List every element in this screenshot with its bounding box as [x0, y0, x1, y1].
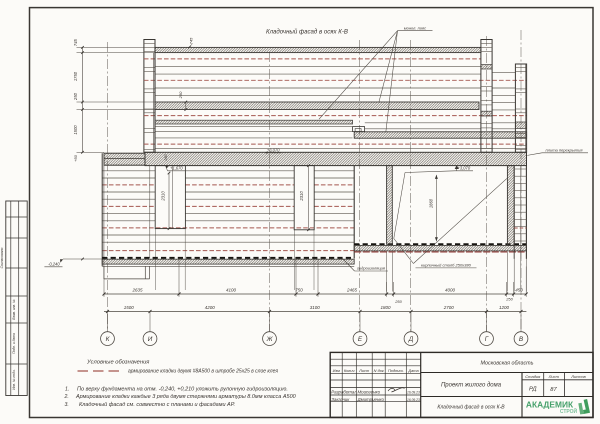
svg-text:1.: 1. [65, 386, 69, 392]
svg-text:Взам. инв. №: Взам. инв. № [12, 299, 16, 320]
svg-text:Д: Д [408, 336, 414, 343]
svg-text:В: В [519, 336, 524, 343]
svg-text:кирпичный столб 250х380: кирпичный столб 250х380 [421, 262, 471, 267]
svg-text:Разработал: Разработал [331, 390, 357, 395]
svg-text:Дата: Дата [407, 368, 419, 373]
svg-text:Колич: Колич [344, 368, 355, 373]
svg-text:Подпись: Подпись [388, 368, 403, 373]
svg-text:Кладочный фасад см. совместно: Кладочный фасад см. совместно с планами … [79, 401, 235, 408]
svg-text:По верху фундамента на отм. -0: По верху фундамента на отм. -0,240, +0,2… [77, 386, 288, 392]
svg-text:1750: 1750 [73, 71, 78, 81]
svg-text:2465: 2465 [346, 288, 358, 293]
svg-text:Дмитриенко: Дмитриенко [357, 397, 385, 402]
svg-text:Г: Г [485, 336, 489, 343]
svg-text:И: И [148, 336, 153, 343]
svg-text:плита перекрытия: плита перекрытия [546, 148, 584, 153]
svg-text:3.: 3. [65, 402, 69, 408]
svg-text:+1,670: +1,670 [170, 166, 183, 171]
svg-text:Е: Е [358, 336, 363, 343]
svg-text:2700: 2700 [443, 305, 455, 310]
svg-text:Ж: Ж [266, 336, 274, 343]
svg-text:1500: 1500 [124, 305, 135, 310]
svg-text:армирование кладки двумя #8А50: армирование кладки двумя #8А500 в штробе… [128, 369, 278, 375]
svg-text:Условные обозначения: Условные обозначения [86, 360, 149, 366]
svg-text:250: 250 [178, 91, 183, 99]
svg-text:16.09.23: 16.09.23 [407, 390, 420, 394]
svg-text:4100: 4100 [226, 288, 237, 293]
svg-text:Подп. и дата: Подп. и дата [12, 333, 16, 354]
svg-text:Кладочный фасад в осях К-В: Кладочный фасад в осях К-В [266, 29, 348, 36]
svg-text:745: 745 [73, 38, 78, 46]
svg-text:Кладочный фасад в осях К-В: Кладочный фасад в осях К-В [437, 404, 505, 411]
svg-text:Лист: Лист [358, 368, 370, 373]
svg-text:-0,240: -0,240 [48, 261, 60, 266]
svg-text:260: 260 [164, 154, 168, 162]
svg-text:Листов: Листов [570, 374, 586, 379]
svg-text:87: 87 [550, 387, 557, 393]
svg-text:N док: N док [374, 368, 384, 373]
svg-text:745: 745 [189, 37, 194, 44]
svg-text:+3,070: +3,070 [267, 147, 280, 152]
svg-text:Изм: Изм [333, 368, 341, 373]
svg-text:3100: 3100 [310, 305, 321, 310]
svg-text:Стадия: Стадия [525, 374, 541, 379]
svg-text:250: 250 [73, 92, 78, 101]
svg-text:РД: РД [529, 387, 537, 393]
svg-text:2635: 2635 [131, 288, 143, 293]
svg-text:+50: +50 [73, 154, 78, 162]
svg-text:4200: 4200 [205, 305, 216, 310]
svg-text:1200: 1200 [499, 305, 510, 310]
svg-text:1800: 1800 [380, 305, 391, 310]
svg-text:250: 250 [505, 297, 513, 302]
svg-text:1500: 1500 [73, 125, 78, 135]
svg-text:монол. пояс: монол. пояс [404, 25, 426, 30]
svg-text:16.09.23: 16.09.23 [407, 398, 420, 402]
svg-text:2310: 2310 [299, 191, 304, 202]
svg-text:гидроизоляция: гидроизоляция [357, 266, 386, 271]
svg-text:250: 250 [394, 299, 402, 304]
svg-text:Моисеенко: Моисеенко [358, 390, 381, 395]
svg-text:Лист: Лист [548, 374, 560, 379]
svg-text:2.: 2. [64, 394, 69, 400]
svg-text:Согласовано: Согласовано [0, 248, 4, 269]
svg-text:4000: 4000 [445, 288, 456, 293]
svg-text:+3,070: +3,070 [457, 166, 470, 171]
svg-text:1860: 1860 [429, 198, 434, 208]
svg-text:СТРОЙ: СТРОЙ [560, 407, 578, 415]
svg-text:450: 450 [515, 288, 523, 293]
svg-text:Заказчик: Заказчик [331, 397, 350, 402]
svg-text:750: 750 [295, 288, 303, 293]
svg-text:Армирование кладки каждые 3 ря: Армирование кладки каждые 3 ряда двумя с… [75, 394, 297, 400]
svg-text:Проект жилого дома: Проект жилого дома [441, 383, 502, 389]
svg-text:Московская область: Московская область [480, 361, 533, 367]
svg-text:2310: 2310 [161, 191, 166, 202]
svg-text:Инв. № подл.: Инв. № подл. [12, 369, 16, 390]
